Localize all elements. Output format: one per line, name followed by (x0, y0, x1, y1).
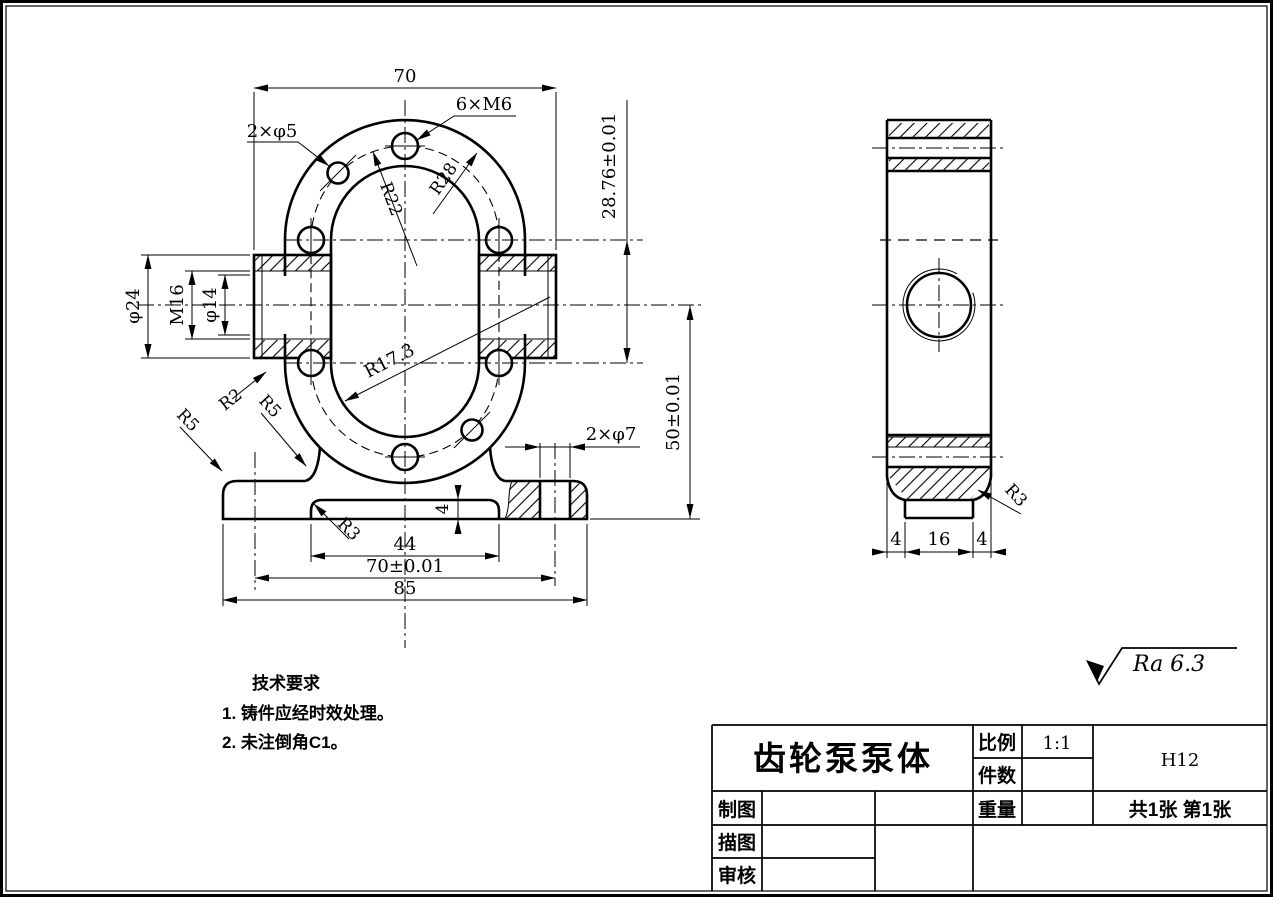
dim-center-to-base: 50±0.01 (663, 373, 684, 451)
title-block: 齿轮泵泵体 比例 1:1 件数 H12 制图 重量 共1张 第1张 描图 审核 (712, 725, 1267, 891)
radius-r5-corner: R5 (172, 405, 203, 436)
quantity-label: 件数 (978, 764, 1017, 787)
dim-bore: φ14 (200, 287, 221, 323)
base-section-hatch (888, 468, 990, 499)
radius-r5-fillet: R5 (254, 391, 285, 422)
weight-label: 重量 (978, 799, 1016, 821)
base-hatch-band (888, 437, 990, 447)
technical-requirements: 技术要求 1. 铸件应经时效处理。 2. 未注倒角C1。 (222, 673, 394, 752)
label-base-holes: 2×φ7 (586, 424, 637, 445)
right-boss-hatch-top (480, 256, 555, 271)
section-hatch (570, 482, 587, 518)
dim-base-width: 85 (394, 578, 417, 599)
dim-boss-od: φ24 (123, 288, 144, 324)
tech-req-item-1: 1. 铸件应经时效处理。 (222, 703, 394, 723)
engineering-drawing: 70 2×φ5 6×M6 R22 R28 R17.3 28.76±0.01 50… (0, 0, 1273, 897)
dim-width-top: 70 (394, 66, 417, 87)
side-view: 4 16 4 R3 (872, 120, 1031, 558)
side-dim-right: 4 (976, 529, 987, 550)
tech-req-heading: 技术要求 (252, 673, 320, 693)
radius-r2: R2 (215, 385, 246, 415)
section-hatch (506, 482, 540, 518)
roughness-value: Ra 6.3 (1132, 652, 1205, 677)
left-boss-hatch-top (255, 256, 330, 271)
top-flange-hatch (889, 123, 989, 137)
sheet-info: 共1张 第1张 (1129, 798, 1232, 821)
dim-hole-spacing: 70±0.01 (366, 556, 444, 577)
surface-finish: Ra 6.3 (1086, 648, 1237, 684)
drawing-frame (2, 2, 1272, 896)
dim-thread: M16 (167, 284, 188, 325)
side-dim-left: 4 (890, 529, 901, 550)
roughness-triangle (1086, 660, 1104, 682)
tech-req-item-2: 2. 未注倒角C1。 (222, 732, 348, 752)
label-bolt-holes: 6×M6 (456, 94, 512, 115)
dim-center-distance: 28.76±0.01 (599, 113, 620, 220)
material-code: H12 (1161, 750, 1200, 771)
part-name: 齿轮泵泵体 (753, 740, 933, 777)
dim-recess-width: 44 (394, 534, 417, 555)
drawing-sheet: 70 2×φ5 6×M6 R22 R28 R17.3 28.76±0.01 50… (0, 0, 1273, 897)
checked-by-label: 审核 (718, 864, 756, 887)
scale-label: 比例 (978, 731, 1016, 754)
scale-value: 1:1 (1043, 733, 1072, 754)
label-dowel-holes: 2×φ5 (247, 121, 298, 142)
top-flange-hatch (889, 159, 989, 170)
traced-by-label: 描图 (718, 831, 756, 854)
side-radius-r3: R3 (1000, 480, 1031, 511)
dim-recess-depth: 4 (433, 504, 453, 515)
drawn-by-label: 制图 (718, 798, 756, 821)
side-dim-middle: 16 (928, 529, 951, 550)
